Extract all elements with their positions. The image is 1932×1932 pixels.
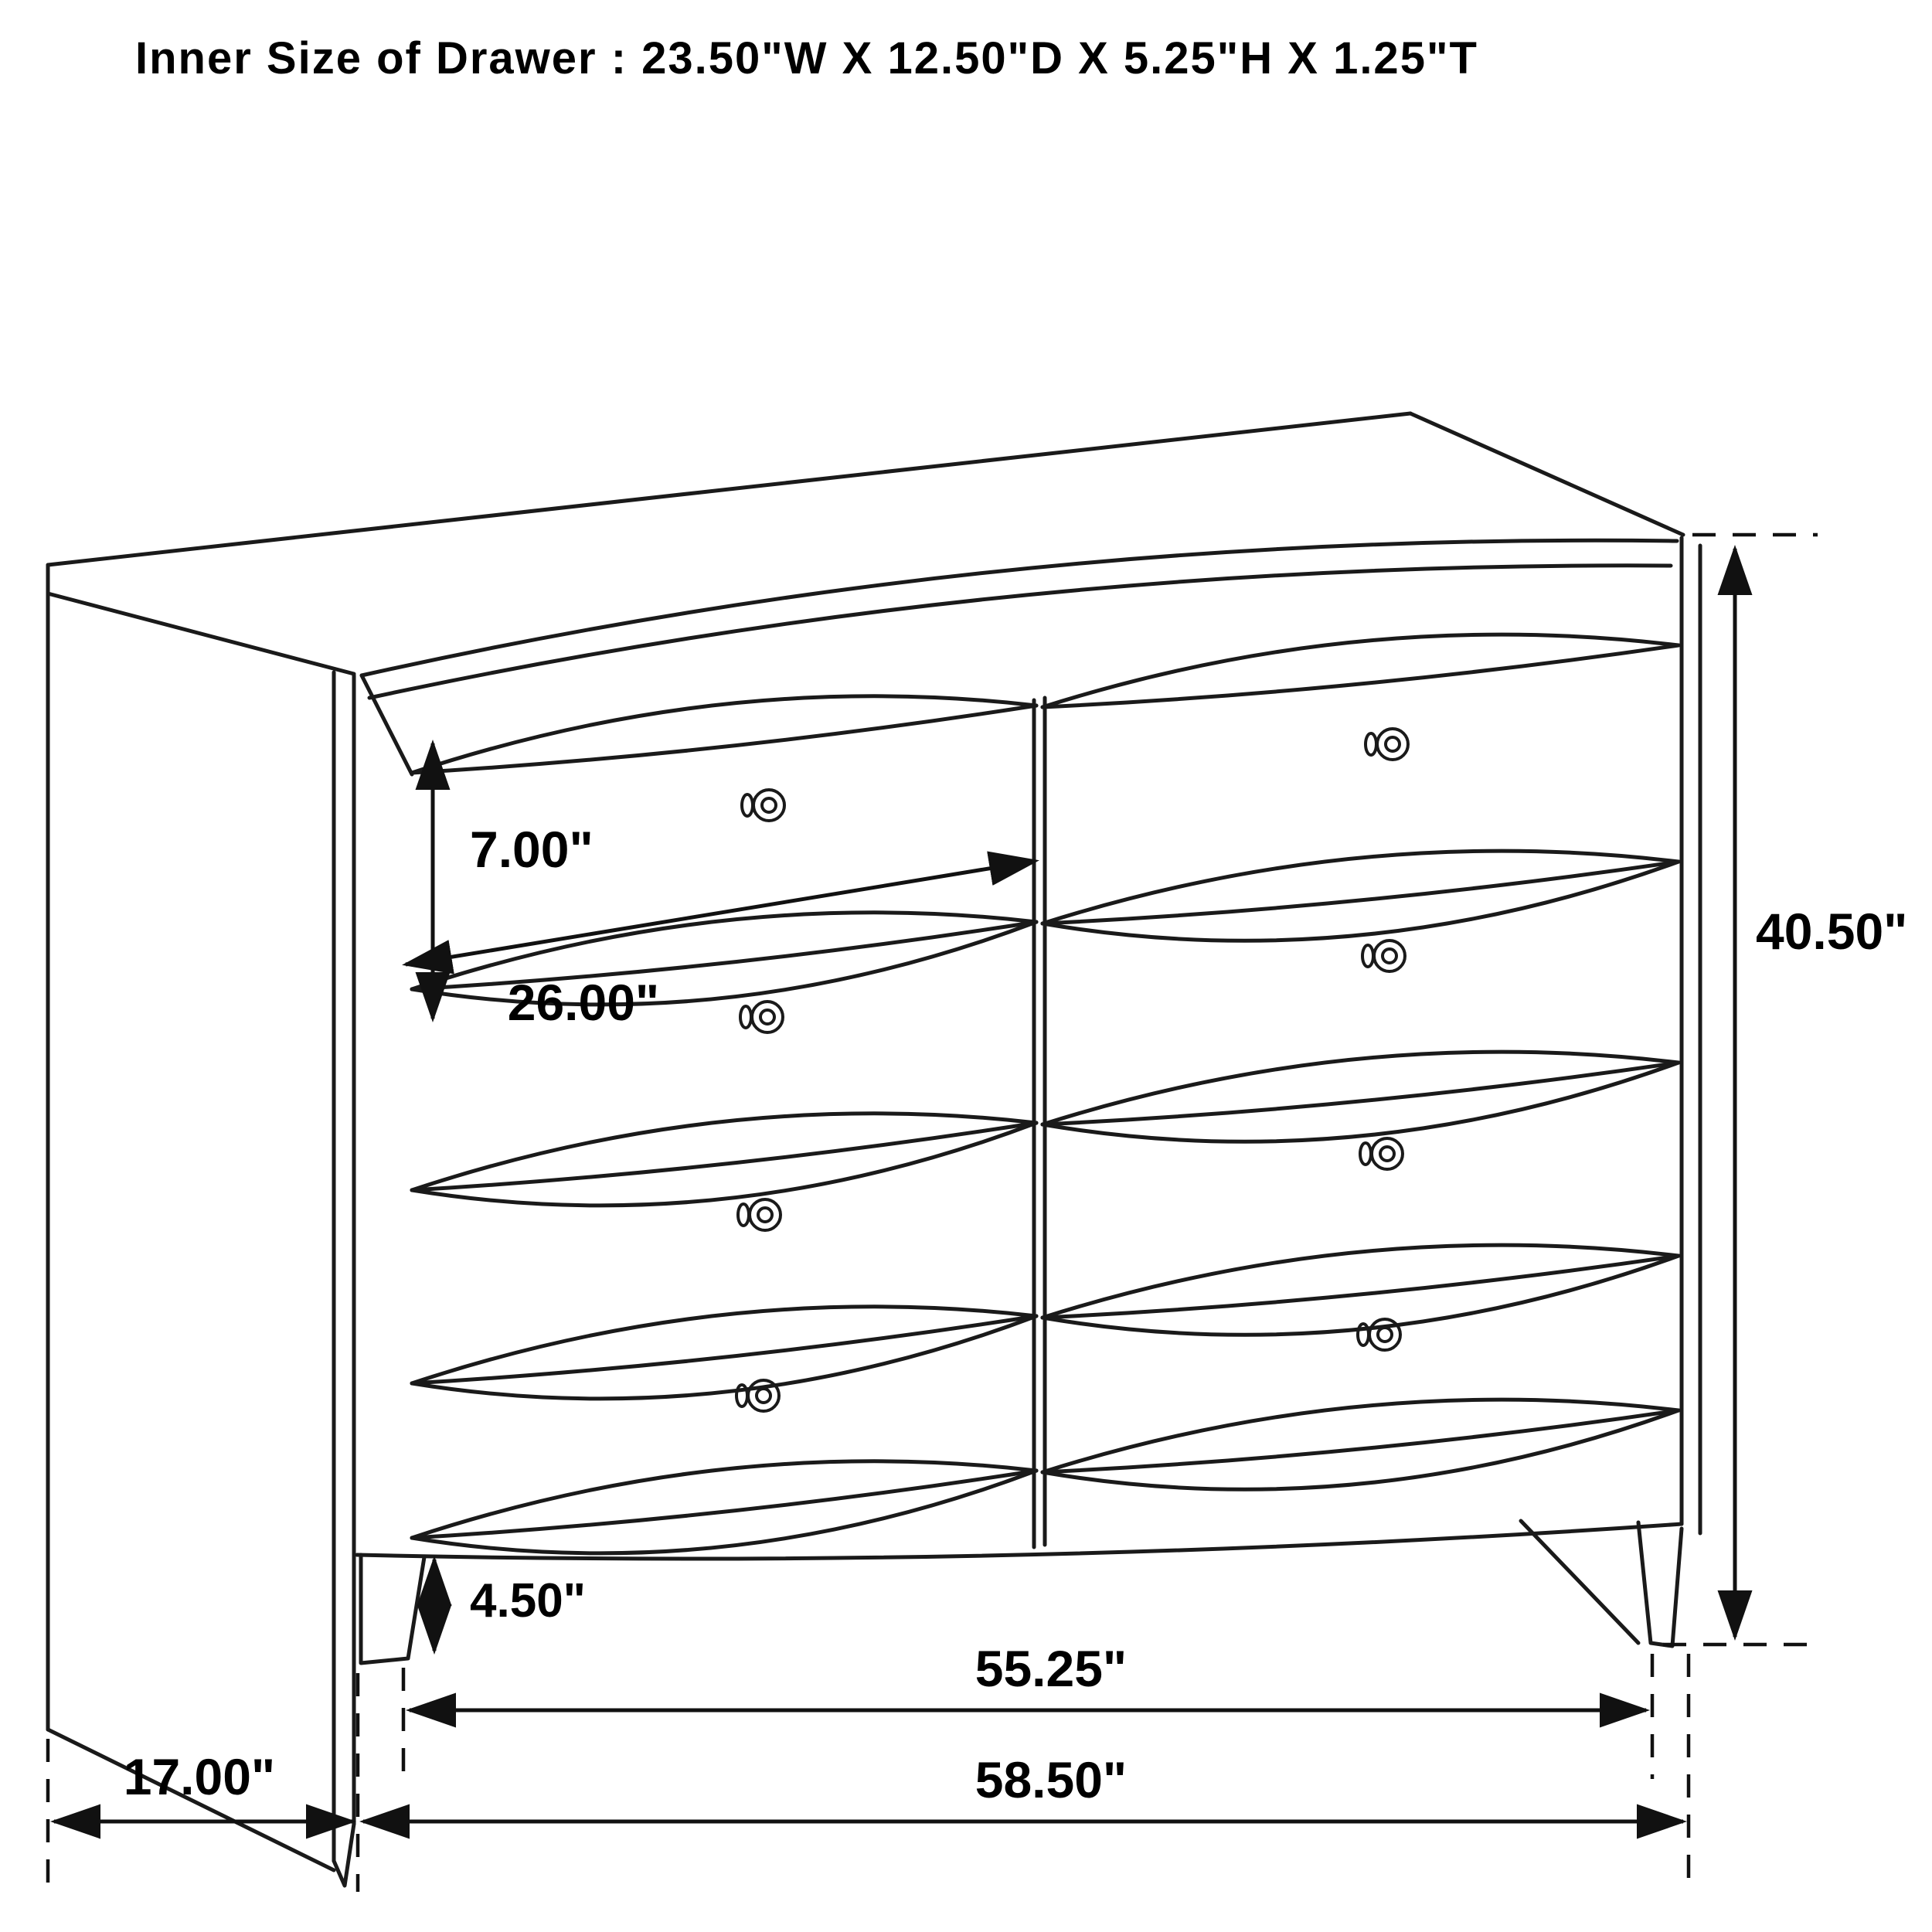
top-rear-edge <box>48 413 1410 565</box>
knob-icon <box>740 1002 783 1032</box>
front-left-leg <box>361 1555 424 1663</box>
dresser-dimension-drawing: Inner Size of Drawer : 23.50"W X 12.50"D… <box>0 0 1932 1932</box>
dimension-overall-height: 40.50" <box>1735 549 1907 1637</box>
dimension-label: 58.50" <box>975 1751 1127 1808</box>
knob-icon <box>1366 729 1408 760</box>
dimension-front-width: 55.25" <box>410 1640 1646 1710</box>
page-title: Inner Size of Drawer : 23.50"W X 12.50"D… <box>135 33 1478 83</box>
drawer-curve <box>1043 1245 1679 1318</box>
knob-icon <box>1360 1138 1403 1169</box>
drawer-fronts-right-column <box>1043 634 1679 1489</box>
knob-icon <box>742 790 784 821</box>
knob-icon <box>1358 1319 1400 1350</box>
drawer-curve <box>1043 1052 1679 1124</box>
top-front-band-edge <box>369 566 1671 698</box>
dimension-label: 4.50" <box>470 1574 586 1628</box>
dimension-label: 7.00" <box>470 821 594 878</box>
drawer-curve <box>412 706 1036 773</box>
dimension-foot-height: 4.50" <box>434 1560 586 1651</box>
drawer-curve <box>1043 634 1679 707</box>
side-panel-top-edge <box>48 594 354 674</box>
knob-icon <box>1362 940 1405 971</box>
drawer-curve <box>412 1461 1036 1538</box>
dimension-label: 55.25" <box>975 1640 1127 1697</box>
drawer-curve <box>412 696 1036 773</box>
dimension-label: 17.00" <box>124 1748 275 1805</box>
dimension-label: 26.00" <box>508 974 659 1031</box>
top-front-edge <box>362 540 1677 675</box>
drawer-curve <box>1043 851 1679 923</box>
drawer-curve <box>412 1114 1036 1190</box>
drawer-curve <box>412 913 1036 989</box>
drawer-curve <box>1043 645 1679 707</box>
front-right-leg-brace <box>1521 1521 1638 1643</box>
extension-lines <box>48 535 1818 1892</box>
dimension-side-depth: 17.00" <box>54 1748 352 1821</box>
drawer-curve <box>1043 1400 1679 1472</box>
knob-icon <box>736 1380 779 1411</box>
dimension-overall-width: 58.50" <box>363 1751 1683 1821</box>
dimension-diagram-page: Inner Size of Drawer : 23.50"W X 12.50"D… <box>0 0 1932 1932</box>
drawer-curve <box>412 1307 1036 1383</box>
dimension-label: 40.50" <box>1756 903 1907 960</box>
front-right-leg <box>1638 1522 1682 1646</box>
top-right-bevel-edge <box>1410 413 1683 535</box>
dimension-drawer-width: 26.00" <box>406 861 1036 1031</box>
side-panel-front-foot <box>334 1824 354 1886</box>
knob-icon <box>738 1199 781 1230</box>
